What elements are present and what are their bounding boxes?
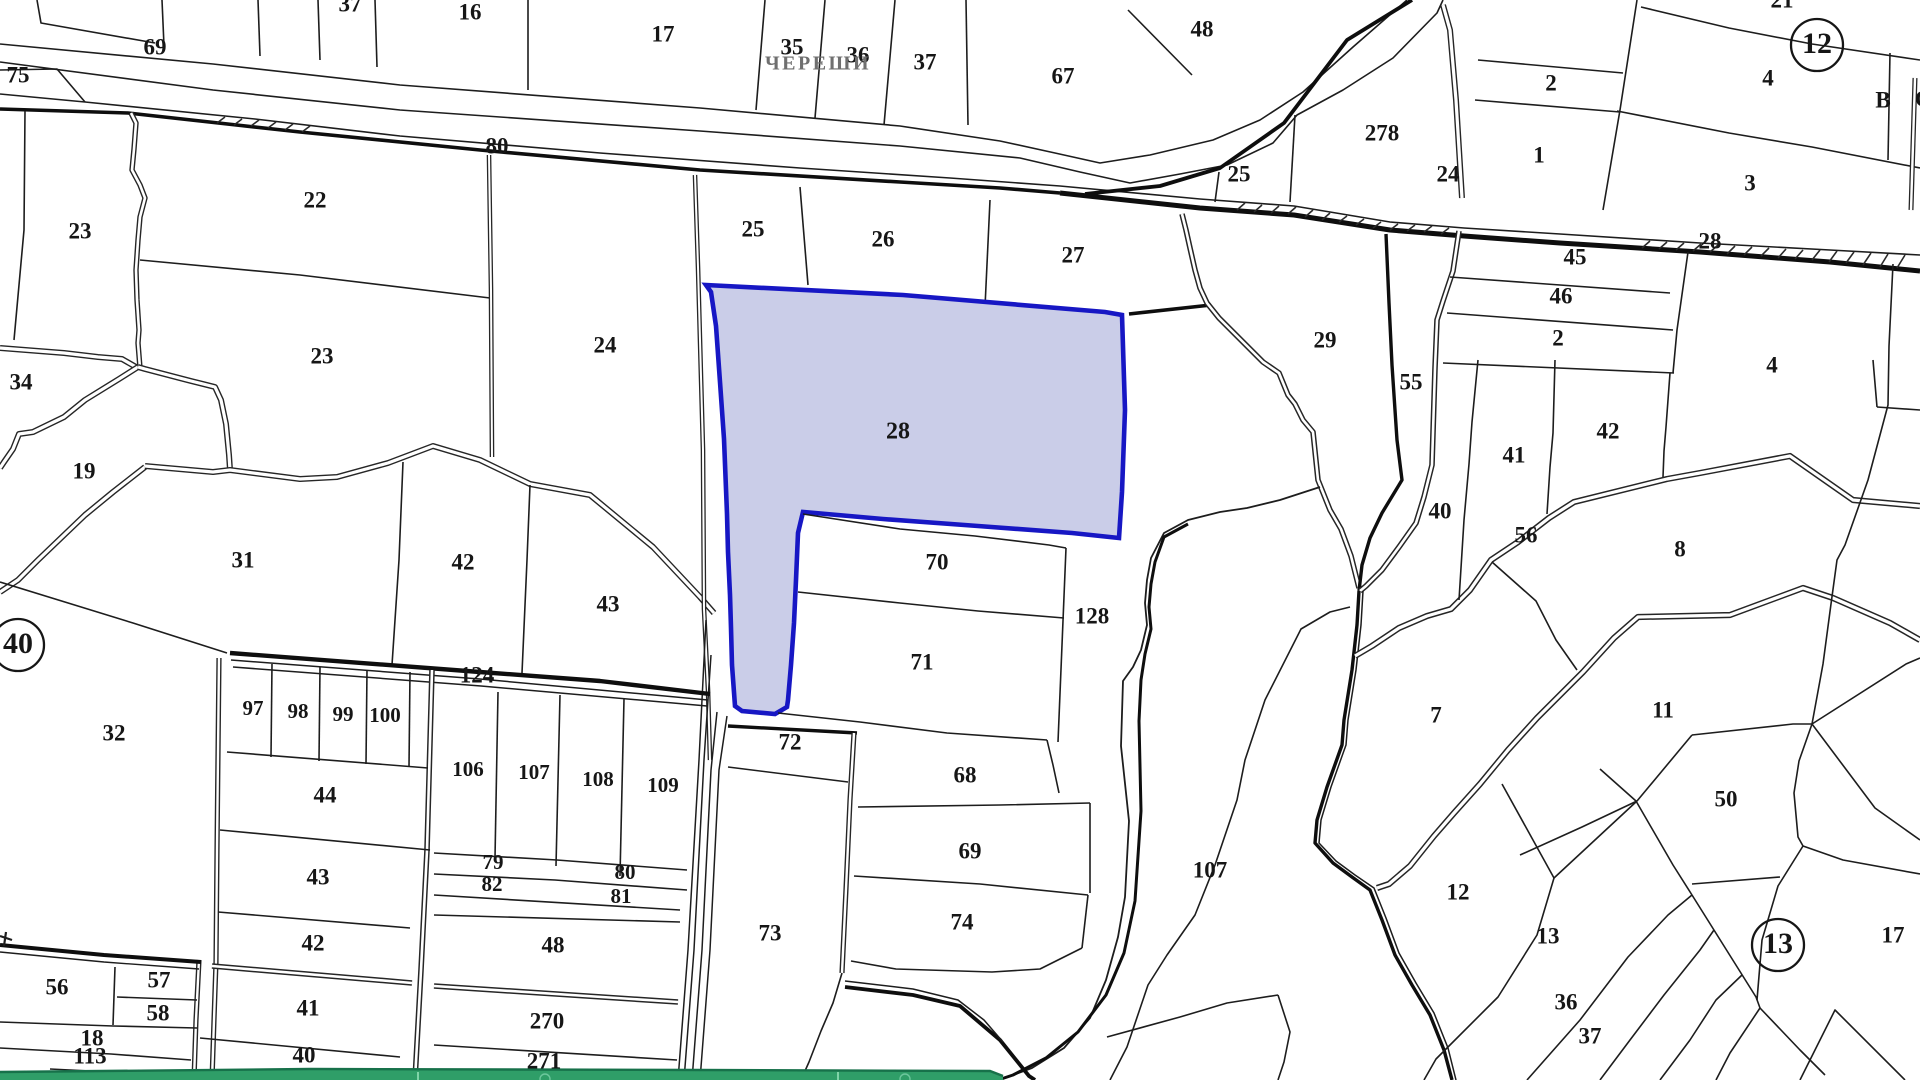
- svg-text:28: 28: [886, 419, 910, 445]
- svg-text:44: 44: [314, 782, 338, 807]
- svg-text:34: 34: [10, 369, 34, 394]
- svg-text:42: 42: [1597, 418, 1620, 443]
- svg-text:124: 124: [460, 662, 495, 687]
- svg-text:3: 3: [1744, 170, 1756, 195]
- svg-text:24: 24: [594, 332, 618, 357]
- svg-text:270: 270: [530, 1008, 565, 1033]
- svg-text:12: 12: [1447, 879, 1470, 904]
- svg-text:О: О: [1915, 86, 1920, 111]
- svg-text:ЧЕРЕШИ: ЧЕРЕШИ: [765, 53, 871, 75]
- svg-text:56: 56: [1515, 522, 1538, 547]
- svg-text:25: 25: [742, 216, 765, 241]
- svg-text:82: 82: [482, 872, 503, 896]
- svg-text:106: 106: [452, 757, 484, 781]
- svg-text:32: 32: [103, 720, 126, 745]
- svg-text:113: 113: [73, 1043, 106, 1068]
- svg-text:45: 45: [1564, 244, 1587, 269]
- svg-text:43: 43: [307, 864, 330, 889]
- svg-text:29: 29: [1314, 327, 1337, 352]
- svg-text:31: 31: [232, 547, 255, 572]
- svg-text:27: 27: [1062, 242, 1085, 267]
- svg-text:46: 46: [1550, 283, 1573, 308]
- svg-text:11: 11: [1652, 697, 1674, 722]
- svg-text:100: 100: [369, 703, 401, 727]
- svg-text:57: 57: [148, 967, 171, 992]
- svg-text:42: 42: [452, 549, 475, 574]
- svg-text:69: 69: [959, 838, 982, 863]
- svg-text:37: 37: [339, 0, 362, 16]
- svg-text:75: 75: [7, 62, 30, 87]
- svg-text:80: 80: [486, 133, 509, 158]
- svg-text:97: 97: [243, 696, 264, 720]
- svg-text:48: 48: [1191, 16, 1214, 41]
- svg-text:26: 26: [872, 226, 895, 251]
- svg-text:73: 73: [759, 920, 782, 945]
- svg-text:4: 4: [1762, 65, 1774, 90]
- svg-text:108: 108: [582, 767, 614, 791]
- svg-text:71: 71: [911, 649, 934, 674]
- svg-text:40: 40: [293, 1042, 316, 1067]
- svg-text:28: 28: [1699, 228, 1722, 253]
- svg-text:56: 56: [46, 974, 69, 999]
- svg-text:42: 42: [302, 930, 325, 955]
- svg-text:40: 40: [3, 627, 33, 660]
- svg-text:13: 13: [1763, 927, 1793, 960]
- svg-text:7: 7: [1430, 702, 1442, 727]
- svg-text:23: 23: [311, 343, 334, 368]
- svg-text:24: 24: [1437, 161, 1461, 186]
- svg-text:68: 68: [954, 762, 977, 787]
- svg-text:25: 25: [1228, 161, 1251, 186]
- svg-text:37: 37: [914, 49, 937, 74]
- svg-text:2: 2: [1545, 70, 1557, 95]
- svg-text:43: 43: [597, 591, 620, 616]
- svg-text:37: 37: [1579, 1023, 1602, 1048]
- svg-text:98: 98: [288, 699, 309, 723]
- svg-text:36: 36: [1555, 989, 1578, 1014]
- svg-text:69: 69: [144, 34, 167, 59]
- svg-text:22: 22: [304, 187, 327, 212]
- svg-text:8: 8: [1674, 536, 1686, 561]
- svg-text:16: 16: [459, 0, 482, 24]
- svg-text:107: 107: [518, 760, 550, 784]
- svg-text:278: 278: [1365, 120, 1400, 145]
- svg-text:128: 128: [1075, 603, 1110, 628]
- svg-text:81: 81: [611, 884, 632, 908]
- svg-text:67: 67: [1052, 63, 1075, 88]
- svg-text:21: 21: [1771, 0, 1794, 12]
- svg-text:19: 19: [73, 458, 96, 483]
- svg-text:17: 17: [652, 21, 675, 46]
- svg-text:271: 271: [527, 1048, 562, 1073]
- svg-text:40: 40: [1429, 498, 1452, 523]
- svg-text:107: 107: [1193, 857, 1228, 882]
- svg-text:23: 23: [69, 218, 92, 243]
- svg-text:58: 58: [147, 1000, 170, 1025]
- svg-text:50: 50: [1715, 786, 1738, 811]
- svg-text:4: 4: [1766, 352, 1778, 377]
- svg-text:41: 41: [1503, 442, 1526, 467]
- svg-text:41: 41: [297, 995, 320, 1020]
- svg-text:13: 13: [1537, 923, 1560, 948]
- svg-text:55: 55: [1400, 369, 1423, 394]
- svg-text:2: 2: [1552, 325, 1564, 350]
- svg-text:99: 99: [333, 702, 354, 726]
- svg-text:72: 72: [779, 729, 802, 754]
- svg-text:17: 17: [1882, 922, 1905, 947]
- svg-text:80: 80: [615, 860, 636, 884]
- svg-text:48: 48: [542, 932, 565, 957]
- svg-text:12: 12: [1802, 27, 1832, 60]
- svg-text:B: B: [1875, 87, 1890, 112]
- svg-text:109: 109: [647, 773, 679, 797]
- svg-text:74: 74: [951, 909, 975, 934]
- svg-text:1: 1: [1533, 142, 1545, 167]
- svg-text:79: 79: [483, 850, 504, 874]
- svg-text:70: 70: [926, 549, 949, 574]
